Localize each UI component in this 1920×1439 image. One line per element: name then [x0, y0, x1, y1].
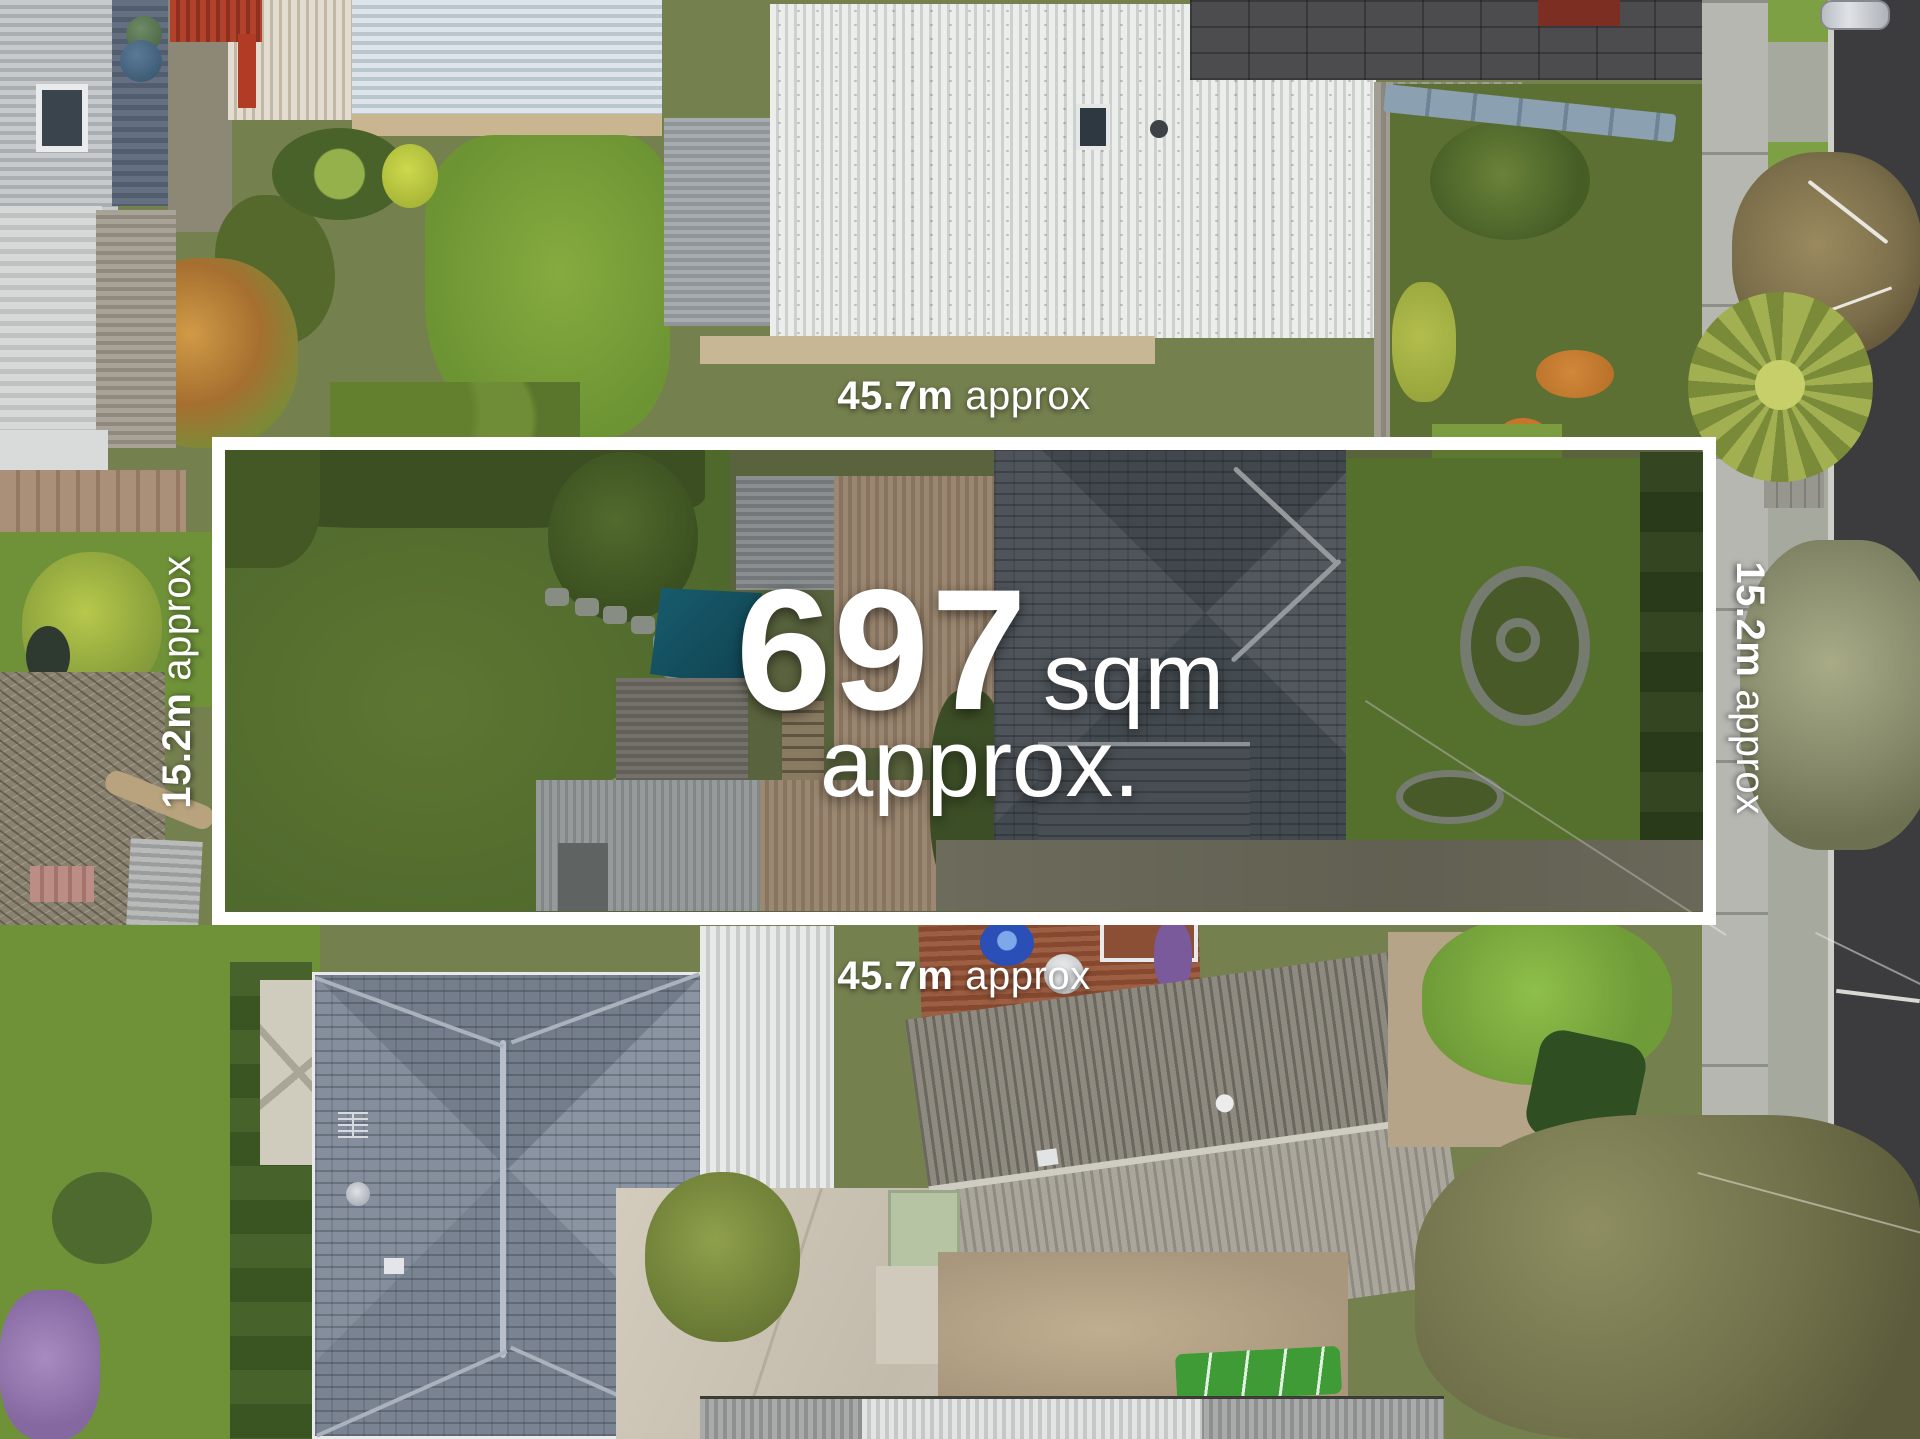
- red-roof-stripe: [238, 34, 256, 108]
- pink-bricks: [30, 866, 94, 902]
- large-olive-tree-canopy: [1415, 1115, 1920, 1439]
- tv-antenna: [338, 1112, 368, 1138]
- bluestone-paving: [1190, 0, 1710, 80]
- timber-deck-left: [96, 210, 176, 448]
- water-tank-blue: [120, 40, 162, 82]
- hedge-mound: [1430, 120, 1590, 240]
- neighbor-roof-pale-blue: [352, 0, 662, 122]
- dimension-label-bottom: 45.7mapprox: [837, 956, 1090, 996]
- yellow-bush: [382, 144, 438, 208]
- dark-red-paving: [1538, 0, 1620, 26]
- dimension-label-left: 15.2mapprox: [157, 555, 197, 808]
- shrub: [52, 1172, 152, 1264]
- roof-box: [384, 1258, 404, 1274]
- bottom-roof-white-section: [862, 1399, 1202, 1439]
- roof-box: [1037, 1148, 1059, 1167]
- roof-ridge-line: [500, 1040, 506, 1358]
- roof-eave-strip: [352, 114, 662, 136]
- dimension-label-right: 15.2mapprox: [1730, 561, 1770, 814]
- dimension-qualifier: approx: [1728, 689, 1772, 814]
- dimension-qualifier: approx: [965, 954, 1090, 998]
- dimension-value: 15.2m: [1728, 561, 1772, 677]
- skylight: [36, 84, 88, 152]
- sand-edge: [700, 336, 1155, 364]
- orange-flower-patch: [1536, 350, 1614, 398]
- artificial-turf-strip: [1175, 1346, 1342, 1403]
- purple-flower-patch: [0, 1290, 100, 1439]
- dimension-qualifier: approx: [965, 374, 1090, 418]
- parked-car: [1820, 0, 1890, 30]
- brick-garden-beds: [0, 470, 186, 532]
- roof-vent: [1150, 120, 1168, 138]
- roof-edge-left: [0, 430, 108, 472]
- dimension-value: 45.7m: [837, 954, 953, 998]
- dimension-value: 15.2m: [155, 693, 199, 809]
- dimension-qualifier: approx: [155, 555, 199, 680]
- skylight: [1076, 104, 1110, 150]
- neighbor-roof-gray: [664, 118, 774, 326]
- driveway-tree: [645, 1172, 800, 1342]
- yellow-green-bush: [1392, 282, 1456, 402]
- aerial-photo-scene: 45.7mapprox 45.7mapprox 15.2mapprox 15.2…: [0, 0, 1920, 1439]
- land-area-label: 697 sqm approx.: [736, 564, 1224, 812]
- palm-tree-core: [1755, 360, 1805, 410]
- roof-vent: [346, 1182, 370, 1206]
- neighbor-roof-white-hip: [0, 206, 102, 430]
- dimension-value: 45.7m: [837, 374, 953, 418]
- white-carport-roof: [700, 926, 834, 1190]
- dimension-label-top: 45.7mapprox: [837, 376, 1090, 416]
